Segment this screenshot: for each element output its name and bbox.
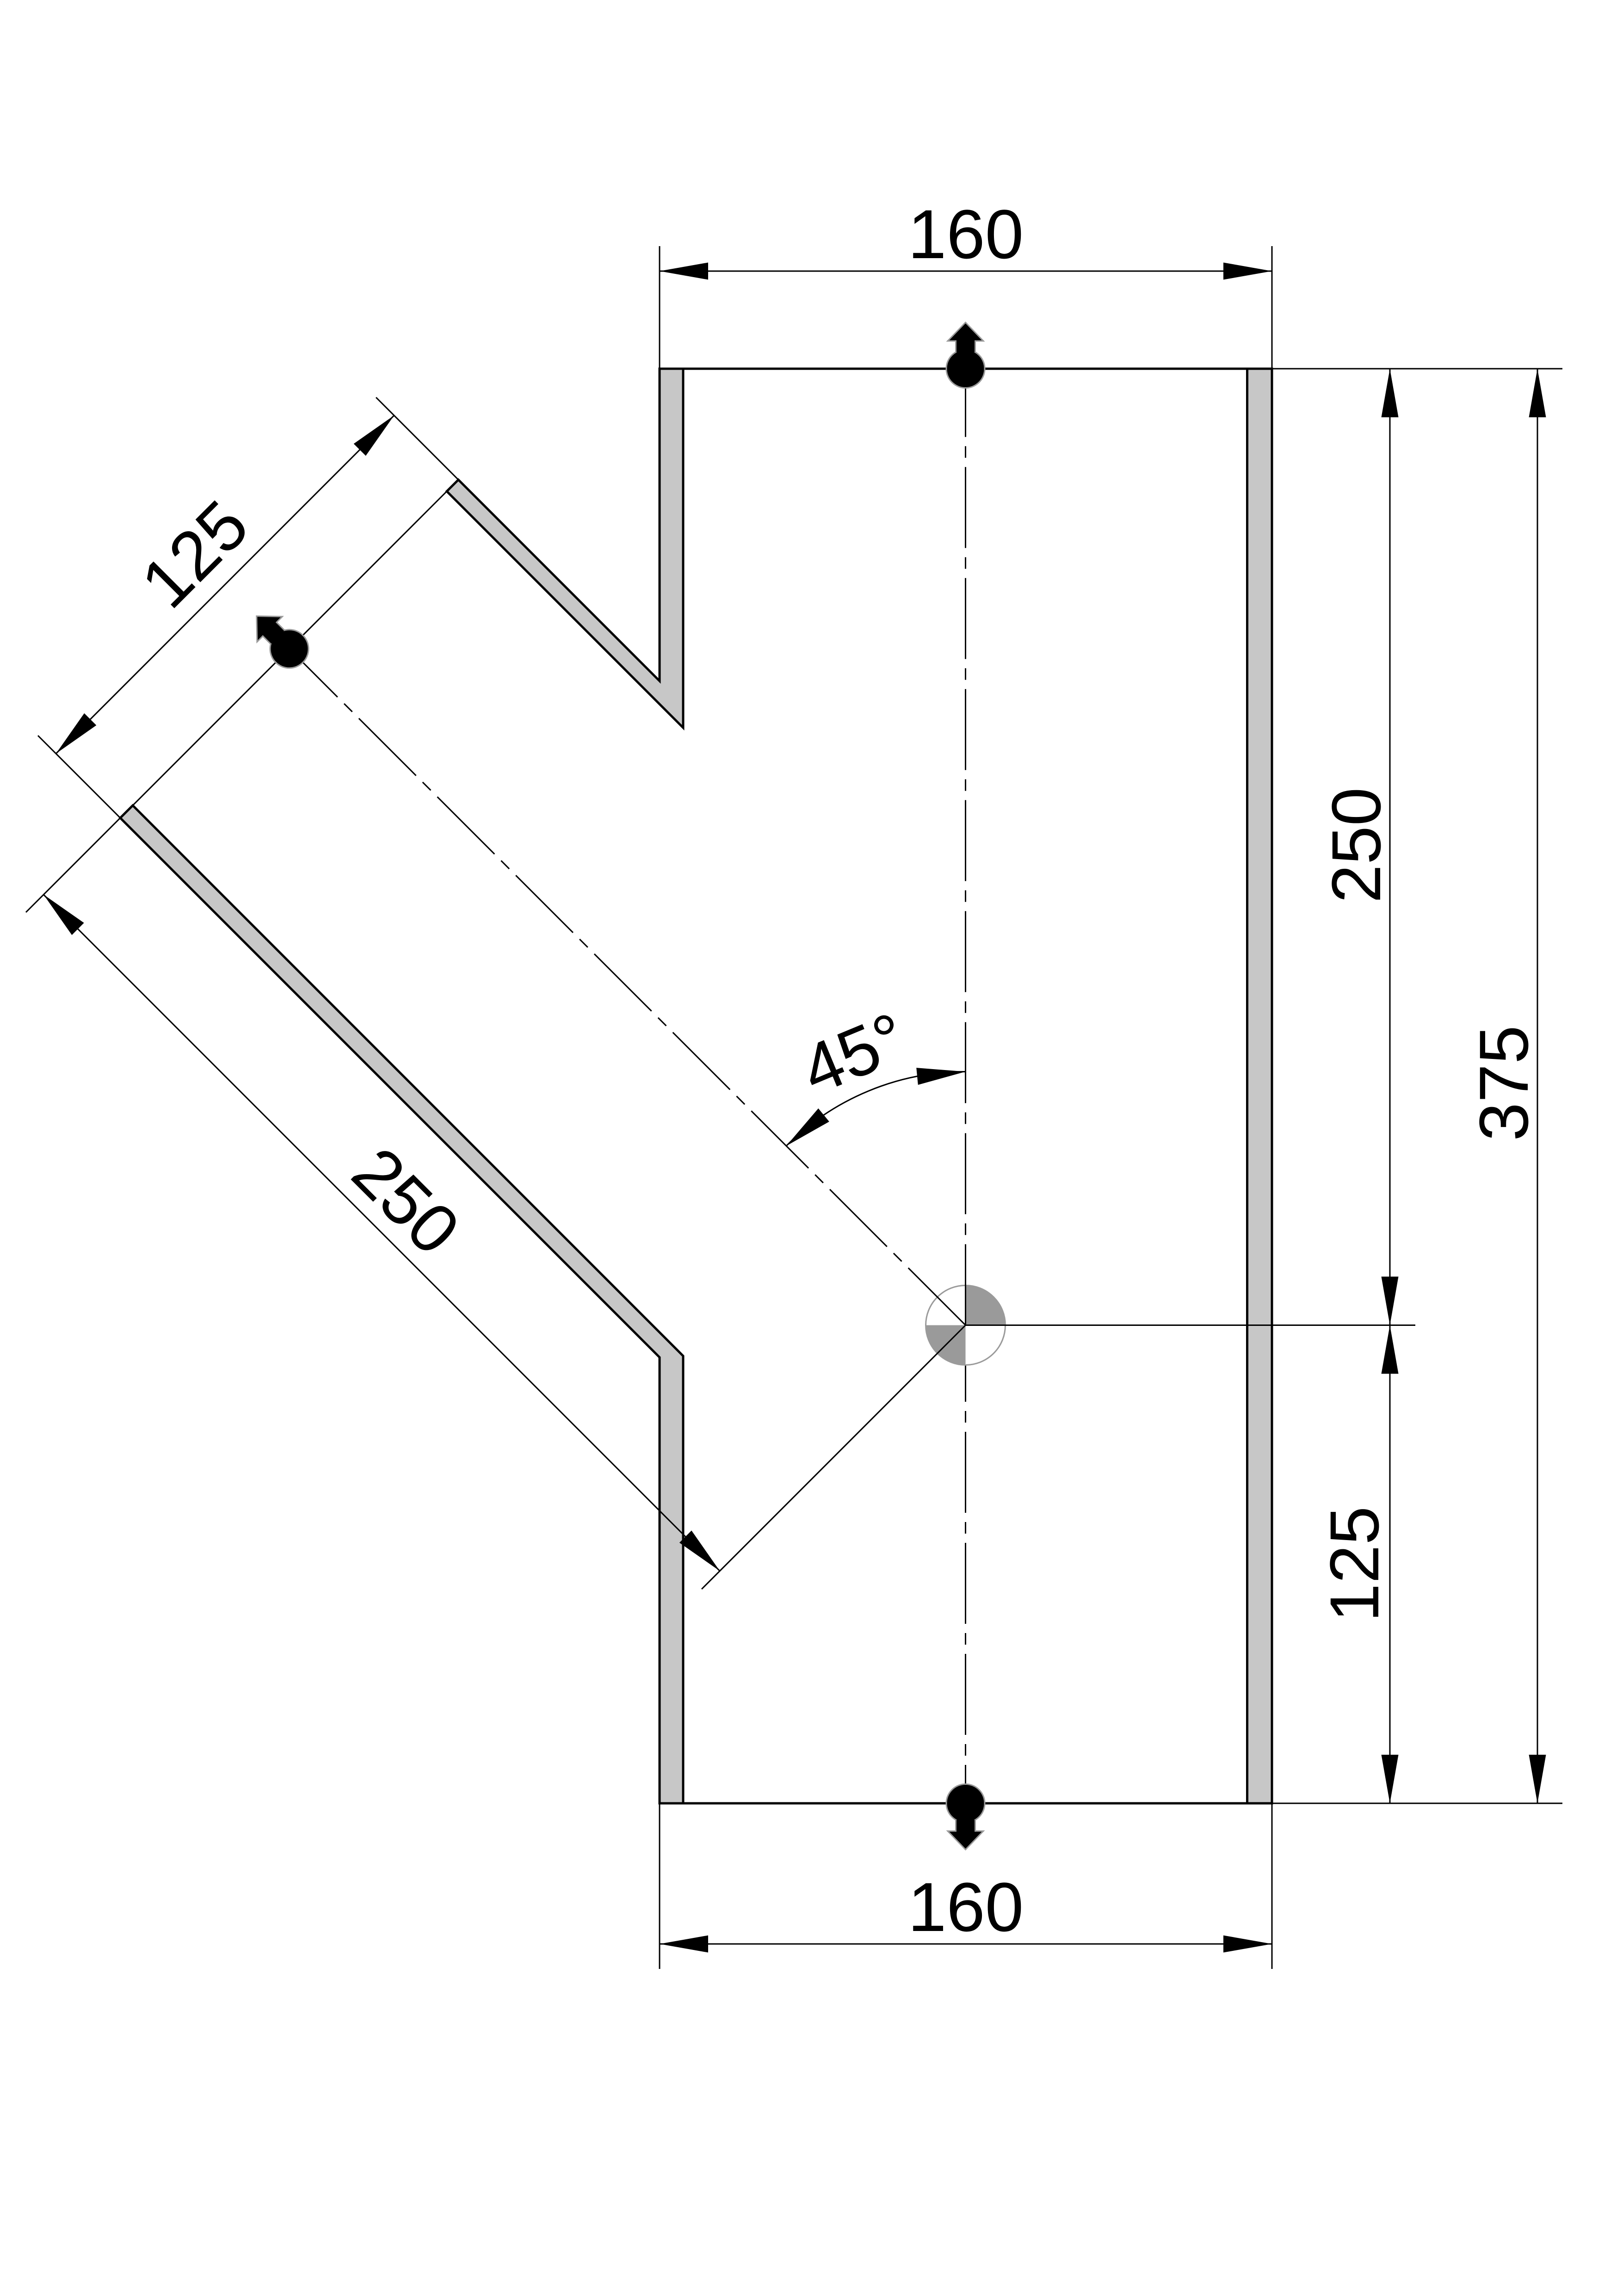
svg-text:125: 125	[126, 486, 263, 623]
svg-text:250: 250	[1317, 787, 1395, 903]
svg-text:160: 160	[908, 1868, 1024, 1946]
svg-text:45°: 45°	[790, 997, 917, 1109]
svg-text:125: 125	[1315, 1506, 1393, 1622]
svg-text:160: 160	[908, 195, 1024, 273]
svg-text:375: 375	[1465, 1025, 1543, 1141]
